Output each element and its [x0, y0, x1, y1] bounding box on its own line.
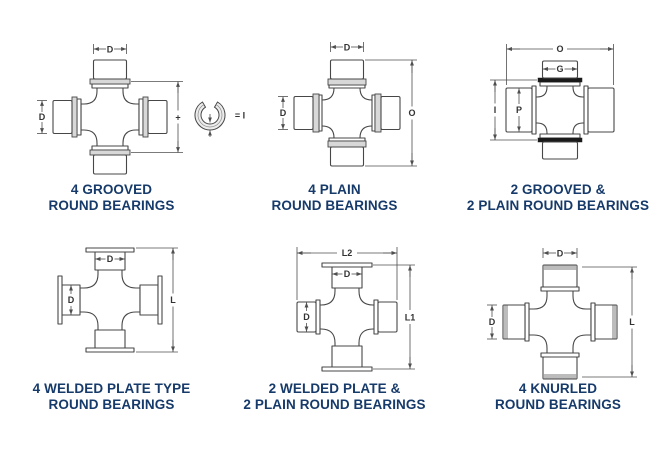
cross-body	[318, 288, 376, 346]
welded-plate	[86, 248, 134, 252]
snap-ring-groove	[538, 138, 582, 142]
dim-top-diameter: D	[543, 248, 577, 259]
dim-label-equals-i: = I	[235, 111, 245, 121]
bearing-bottom-welded-plate	[86, 330, 134, 352]
caption-line: 4 WELDED PLATE TYPE	[0, 381, 223, 397]
dim-label-top-d: D	[557, 249, 564, 259]
caption-line: 2 GROOVED &	[446, 182, 670, 198]
caption-4-plain: 4 PLAIN ROUND BEARINGS	[223, 182, 446, 213]
bearing-top-knurled	[541, 265, 579, 291]
welded-plate	[158, 276, 162, 324]
dim-label-left-d: D	[280, 108, 287, 118]
bearing-bottom-grooved	[90, 146, 130, 174]
bearing-left-grooved	[53, 97, 81, 137]
dim-left-diameter: D	[487, 305, 497, 339]
cross-body	[319, 85, 375, 141]
diagram-2-welded-2-plain-round-bearings: L2 D D L1	[297, 247, 417, 372]
bearing-bottom-plain	[328, 138, 366, 166]
dim-label-g: G	[556, 64, 563, 74]
caption-4-welded-plate: 4 WELDED PLATE TYPE ROUND BEARINGS	[0, 381, 223, 412]
bearing-right-plain	[584, 86, 614, 134]
caption-line: ROUND BEARINGS	[0, 198, 223, 214]
welded-plate	[322, 367, 372, 371]
diagram-4-welded-plate-round-bearings: D D L	[58, 248, 179, 352]
caption-line: ROUND BEARINGS	[0, 397, 223, 413]
welded-plate	[58, 276, 62, 324]
dim-label-l: L	[170, 295, 176, 305]
caption-4-knurled: 4 KNURLED ROUND BEARINGS	[446, 381, 670, 412]
bearing-left-plain	[294, 94, 322, 132]
dim-top-diameter: D	[331, 42, 364, 53]
bearing-right-knurled	[591, 303, 617, 341]
dim-label-l: L	[629, 317, 635, 327]
bearing-bottom-welded-plate	[322, 346, 372, 371]
cross-body	[80, 270, 140, 330]
diagram-4-knurled-round-bearings: D D L	[487, 248, 638, 379]
caption-line: ROUND BEARINGS	[223, 198, 446, 214]
dim-label-p: P	[516, 105, 522, 115]
knurl-band	[612, 306, 617, 339]
dim-label-left-d: D	[303, 312, 310, 322]
caption-line: 4 KNURLED	[446, 381, 670, 397]
catalog-figure-sheet: D D + = I	[0, 0, 670, 450]
caption-line: 2 WELDED PLATE &	[223, 381, 446, 397]
welded-plate	[86, 348, 134, 352]
welded-plate	[322, 263, 372, 267]
caption-line: 2 PLAIN ROUND BEARINGS	[446, 198, 670, 214]
knurl-band	[544, 374, 577, 379]
bearing-right-grooved	[139, 97, 167, 137]
caption-2-welded-2-plain: 2 WELDED PLATE & 2 PLAIN ROUND BEARINGS	[223, 381, 446, 412]
dim-left-diameter: D	[278, 97, 288, 130]
caption-line: 4 GROOVED	[0, 182, 223, 198]
diagram-4-plain-round-bearings: D D O	[278, 42, 418, 166]
dim-label-plus: +	[175, 113, 180, 123]
diagram-2-grooved-2-plain-round-bearings: O G I P	[489, 43, 614, 160]
caption-line: 2 PLAIN ROUND BEARINGS	[223, 397, 446, 413]
diagram-4-grooved-round-bearings: D D + = I	[37, 44, 245, 174]
snap-ring-icon	[195, 102, 225, 137]
dim-label-left-d: D	[68, 295, 75, 305]
bearing-right-welded-plate	[140, 276, 162, 324]
cross-body	[534, 84, 586, 136]
caption-line: ROUND BEARINGS	[446, 397, 670, 413]
bearing-top-grooved	[90, 60, 130, 88]
dim-label-o: O	[408, 108, 415, 118]
bearing-right-plain	[374, 300, 397, 334]
dim-label-l1: L1	[405, 312, 416, 322]
dim-label-left-d: D	[39, 112, 46, 122]
dim-label-top-d: D	[107, 254, 114, 264]
dim-label-l2: L2	[342, 248, 353, 258]
dim-label-top-d: D	[107, 45, 114, 55]
dim-top-diameter: D	[94, 44, 127, 55]
cross-body	[529, 291, 591, 353]
knurl-band	[544, 266, 577, 271]
caption-2-grooved-2-plain: 2 GROOVED & 2 PLAIN ROUND BEARINGS	[446, 182, 670, 213]
bearing-bottom-knurled	[541, 353, 579, 379]
caption-4-grooved: 4 GROOVED ROUND BEARINGS	[0, 182, 223, 213]
snap-ring-groove	[538, 78, 582, 82]
dim-label-o: O	[556, 44, 563, 54]
dim-label-i: I	[494, 105, 497, 115]
bearing-right-plain	[372, 94, 400, 132]
dim-label-top-d: D	[344, 43, 351, 53]
dim-label-left-d: D	[489, 317, 496, 327]
cross-body	[81, 88, 139, 146]
bearing-bottom-grooved	[538, 134, 582, 159]
bearing-left-knurled	[503, 303, 529, 341]
dim-label-top-d: D	[344, 269, 351, 279]
dim-left-diameter: D	[37, 101, 47, 134]
caption-line: 4 PLAIN	[223, 182, 446, 198]
bearing-top-plain	[328, 60, 366, 88]
knurl-band	[504, 306, 509, 339]
